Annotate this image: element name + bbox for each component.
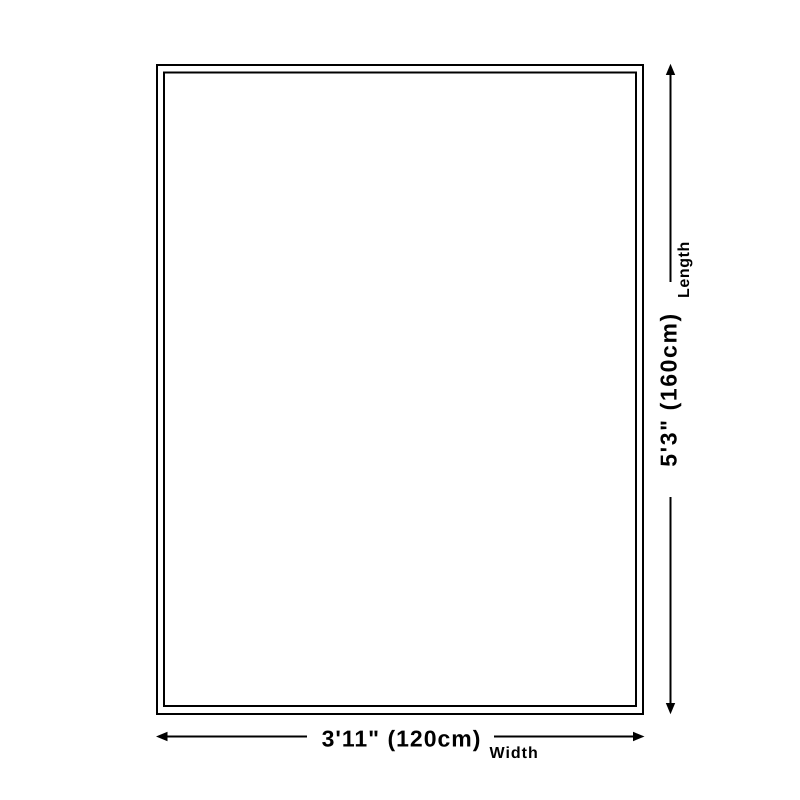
svg-text:Width: Width [490, 745, 539, 762]
svg-text:3'11" (120cm): 3'11" (120cm) [322, 726, 482, 752]
svg-text:Length: Length [676, 241, 693, 298]
svg-text:5'3" (160cm): 5'3" (160cm) [656, 312, 682, 466]
